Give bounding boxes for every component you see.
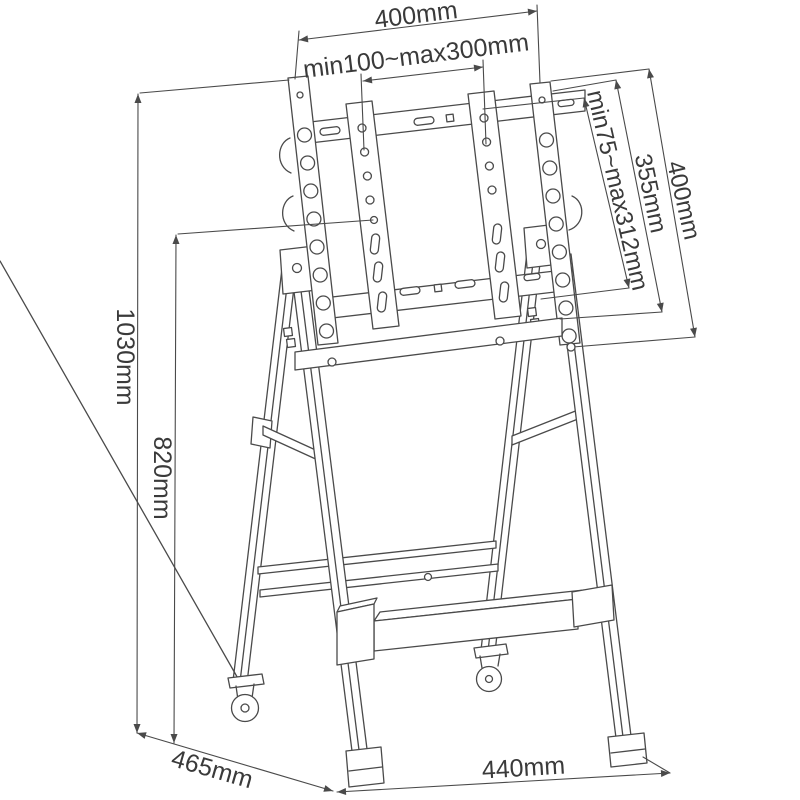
dim-mount-width-range-label: min100~max300mm [302, 28, 531, 83]
tv-stand-dimension-diagram: 400mm min100~max300mm min75~max312mm 355… [0, 0, 800, 800]
stand-structure [0, 76, 647, 787]
caster-left [228, 674, 264, 722]
dim-base-width-label: 440mm [481, 751, 566, 784]
caster-right [474, 644, 508, 692]
technical-drawing: 400mm min100~max300mm min75~max312mm 355… [0, 0, 800, 800]
dim-total-height-label: 1030mm [111, 308, 139, 405]
dim-total-height: 1030mm [111, 80, 289, 733]
dim-frame-height-label: 820mm [148, 436, 176, 519]
dim-base-depth: 465mm [137, 733, 333, 794]
rear-crossbars [258, 541, 498, 597]
dim-base-depth-label: 465mm [168, 744, 256, 794]
dim-top-width-label: 400mm [373, 0, 459, 34]
